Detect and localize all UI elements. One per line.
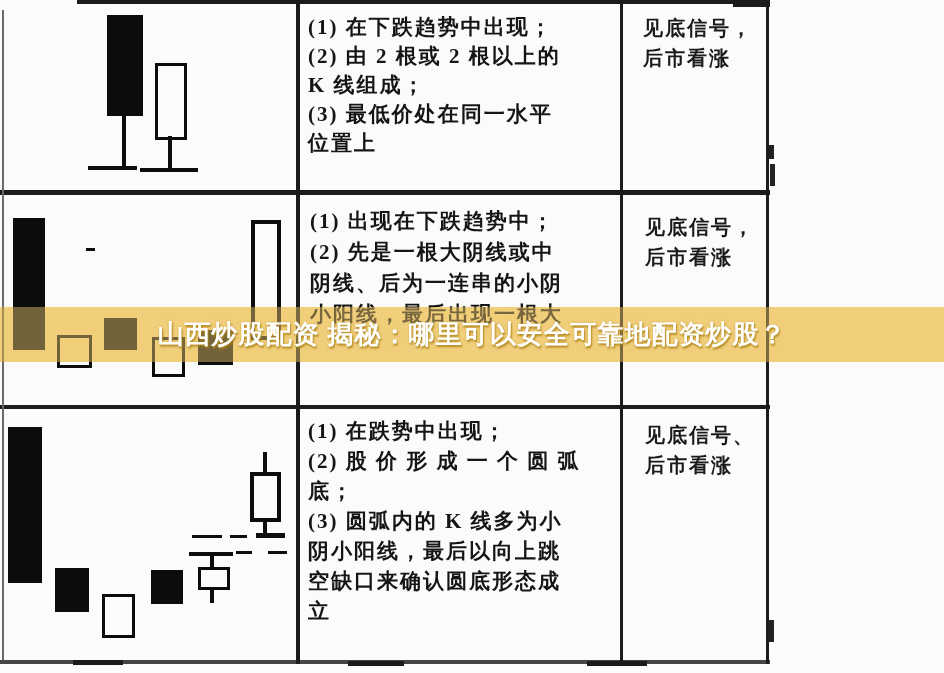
table-row-divider bbox=[0, 405, 770, 409]
table-border-bottom-dark-segment bbox=[587, 661, 647, 666]
signal-text-row3: 见底信号、 后市看涨 bbox=[645, 420, 765, 480]
pattern-mark bbox=[230, 535, 247, 538]
ad-banner-text[interactable]: 山西炒股配资 揭秘：哪里可以安全可靠地配资炒股？ bbox=[157, 317, 786, 352]
bearish-candle bbox=[107, 15, 143, 116]
bearish-candle bbox=[151, 570, 183, 604]
pattern-mark bbox=[263, 452, 267, 472]
pattern-mark bbox=[263, 522, 267, 533]
ad-banner[interactable]: 山西炒股配资 揭秘：哪里可以安全可靠地配资炒股？ bbox=[0, 307, 944, 362]
bullish-candle bbox=[198, 567, 230, 590]
pattern-mark bbox=[86, 248, 95, 251]
table-row-divider bbox=[0, 190, 770, 195]
scan-artifact bbox=[770, 164, 775, 186]
pattern-mark bbox=[122, 114, 126, 168]
bearish-candle bbox=[55, 568, 89, 612]
candlestick-pattern-row1 bbox=[0, 4, 296, 190]
candlestick-pattern-row3 bbox=[0, 410, 296, 660]
pattern-mark bbox=[210, 556, 214, 567]
scan-artifact bbox=[769, 145, 774, 159]
candlestick-pattern-row2 bbox=[0, 198, 296, 405]
pattern-mark bbox=[140, 168, 198, 172]
pattern-mark bbox=[88, 166, 137, 170]
bullish-candle bbox=[250, 472, 281, 522]
signal-text-row1: 见底信号， 后市看涨 bbox=[643, 13, 763, 73]
table-border-bottom-dark-segment bbox=[73, 660, 123, 665]
pattern-mark bbox=[268, 551, 287, 554]
table-border-bottom-dark-segment bbox=[348, 661, 404, 666]
pattern-description-row1: (1) 在下跌趋势中出现； (2) 由 2 根或 2 根以上的 K 线组成； (… bbox=[308, 13, 614, 158]
pattern-mark bbox=[168, 136, 172, 170]
scan-artifact bbox=[768, 620, 774, 642]
pattern-mark bbox=[236, 551, 252, 554]
signal-text-row2: 见底信号， 后市看涨 bbox=[645, 212, 765, 272]
pattern-mark bbox=[192, 535, 222, 538]
pattern-mark bbox=[210, 590, 214, 603]
bullish-candle bbox=[155, 63, 187, 140]
table-border-top-thick-segment bbox=[733, 0, 770, 7]
pattern-description-row3: (1) 在跌势中出现； (2) 股 价 形 成 一 个 圆 弧 底； (3) 圆… bbox=[308, 416, 614, 626]
pattern-mark bbox=[256, 533, 285, 538]
bullish-candle bbox=[102, 594, 135, 638]
bearish-candle bbox=[8, 427, 42, 583]
